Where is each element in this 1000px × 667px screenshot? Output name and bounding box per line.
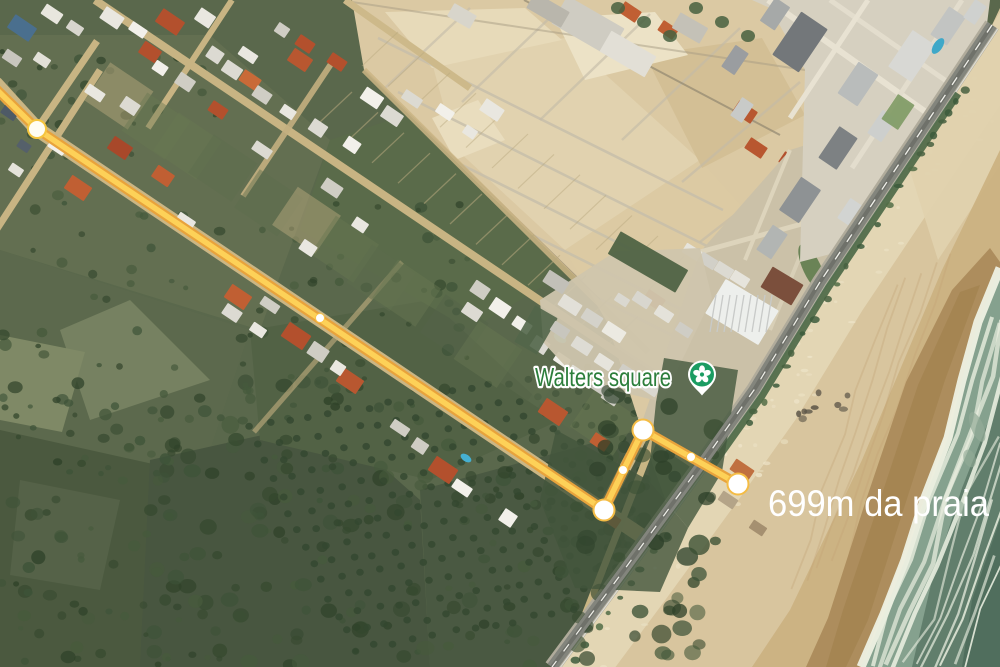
svg-text:699m da praia: 699m da praia (768, 483, 989, 524)
svg-text:Walters square: Walters square (535, 362, 671, 392)
